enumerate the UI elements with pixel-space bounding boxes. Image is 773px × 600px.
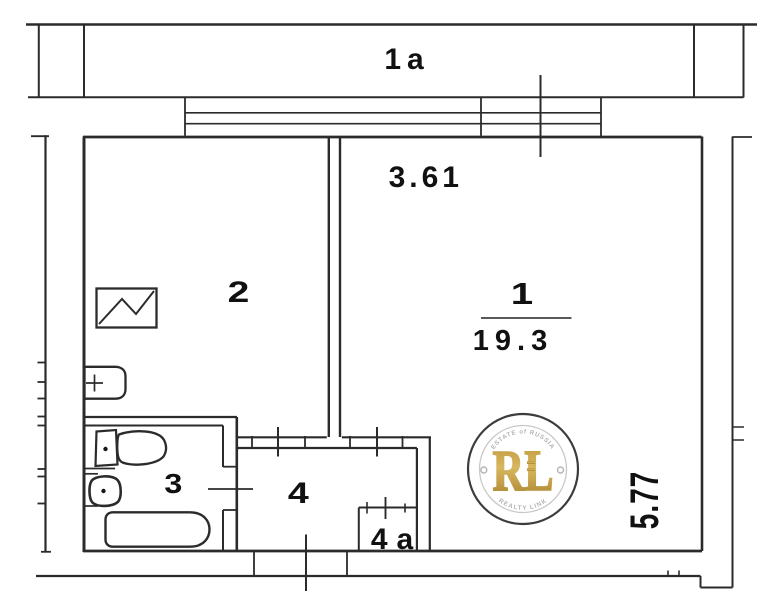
svg-text:5.77: 5.77 — [624, 471, 668, 529]
svg-text:1a: 1a — [384, 43, 429, 76]
svg-text:1: 1 — [511, 276, 533, 311]
svg-text:4: 4 — [288, 476, 309, 510]
svg-text:2: 2 — [228, 276, 250, 309]
svg-text:4a: 4a — [371, 523, 422, 556]
svg-text:3.61: 3.61 — [389, 161, 463, 194]
svg-text:19.3: 19.3 — [473, 325, 553, 357]
svg-text:3: 3 — [164, 469, 182, 500]
svg-text:RL: RL — [493, 438, 554, 503]
